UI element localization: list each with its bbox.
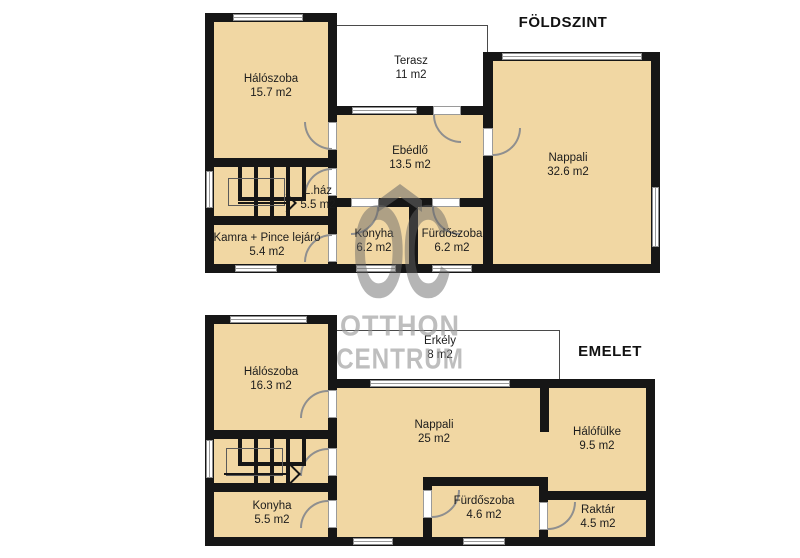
room-area: 5.4 m2 [249,246,284,258]
window [463,538,505,545]
room-name: Terasz [394,55,428,67]
wall [540,491,655,500]
window [233,14,303,21]
room-area: 32.6 m2 [547,166,589,178]
room-name: Hálószoba [244,366,298,378]
wall [423,477,548,486]
room-name: L.ház [304,185,332,197]
window [230,316,307,323]
floor-title-upper: EMELET [578,343,642,360]
door-jamb [351,198,379,207]
room-label-ground-nappali: Nappali 32.6 m2 [547,151,589,179]
room-name: Erkély [424,335,456,347]
room-name: Fürdőszoba [422,228,483,240]
room-name: Hálószoba [244,73,298,85]
room-label-ground-haloszoba: Hálószoba 15.7 m2 [244,72,298,100]
wall [205,430,337,439]
window [235,265,277,272]
wall [646,379,655,546]
room-area: 15.7 m2 [250,87,292,99]
stair-handrail [226,448,283,476]
door-jamb [539,502,548,530]
room-area: 4.6 m2 [466,509,501,521]
window [353,538,393,545]
door-jamb [423,490,432,518]
room-label-upper-haloszoba: Hálószoba 16.3 m2 [244,365,298,393]
stairs-direction-line [224,473,286,475]
room-name: Nappali [415,419,454,431]
room-label-ground-kamra: Kamra + Pince lejáró 5.4 m2 [213,231,320,259]
window [206,440,213,478]
room-label-ground-terasz: Terasz 11 m2 [394,54,428,82]
room-name: Raktár [581,504,615,516]
room-name: Fürdőszoba [454,495,515,507]
floor-plan-canvas: Hálószoba 15.7 m2 Terasz 11 m2 Ebédlő 13… [0,0,800,558]
wall [205,537,655,546]
window [352,107,417,114]
staircase-ground [238,167,306,216]
room-label-ground-ebedlo: Ebédlő 13.5 m2 [389,144,431,172]
room-area: 5.5 m2 [254,514,289,526]
room-area: 16.3 m2 [250,380,292,392]
room-area: 5.5 m2 [300,199,335,211]
room-area: 6.2 m2 [356,242,391,254]
room-label-upper-nappali: Nappali 25 m2 [415,418,454,446]
room-area: 13.5 m2 [389,159,431,171]
wall [205,483,337,492]
window [652,187,659,247]
window [206,171,213,208]
room-name: Hálófülke [573,426,621,438]
door-jamb [328,390,337,418]
window [502,53,642,60]
room-label-upper-konyha: Konyha 5.5 m2 [252,499,291,527]
room-area: 4.5 m2 [580,518,615,530]
room-label-ground-furdoszoba: Fürdőszoba 6.2 m2 [422,227,483,255]
wall [483,52,493,264]
room-name: Kamra + Pince lejáró [213,232,320,244]
room-area: 6.2 m2 [434,242,469,254]
room-area: 8 m2 [427,349,453,361]
stair-step [286,439,290,462]
wall [409,207,418,264]
door-jamb [433,106,461,115]
wall [205,216,337,225]
room-label-upper-raktar: Raktár 4.5 m2 [580,503,615,531]
room-label-ground-konyha: Konyha 6.2 m2 [354,227,393,255]
door-jamb [328,448,337,476]
window [432,265,472,272]
room-name: Konyha [252,500,291,512]
stair-step [302,439,306,462]
door-jamb [483,128,493,156]
room-label-ground-lhaz: L.ház 5.5 m2 [300,184,335,212]
room-name: Nappali [549,152,588,164]
staircase-upper [238,439,306,483]
stairs-direction-arrow [281,464,301,484]
passage-fill [540,432,548,477]
room-name: Ebédlő [392,145,428,157]
floor-title-ground: FÖLDSZINT [519,14,608,31]
door-jamb [432,198,460,207]
room-area: 25 m2 [418,433,450,445]
room-name: Konyha [354,228,393,240]
window [370,380,510,387]
room-label-upper-halofulke: Hálófülke 9.5 m2 [573,425,621,453]
room-label-upper-erkely: Erkély 8 m2 [424,334,456,362]
room-area: 11 m2 [395,69,426,81]
room-area: 9.5 m2 [579,440,614,452]
door-jamb [328,500,337,528]
room-label-upper-furdoszoba: Fürdőszoba 4.6 m2 [454,494,515,522]
window [356,265,396,272]
wall [205,158,337,167]
wall [540,388,549,432]
